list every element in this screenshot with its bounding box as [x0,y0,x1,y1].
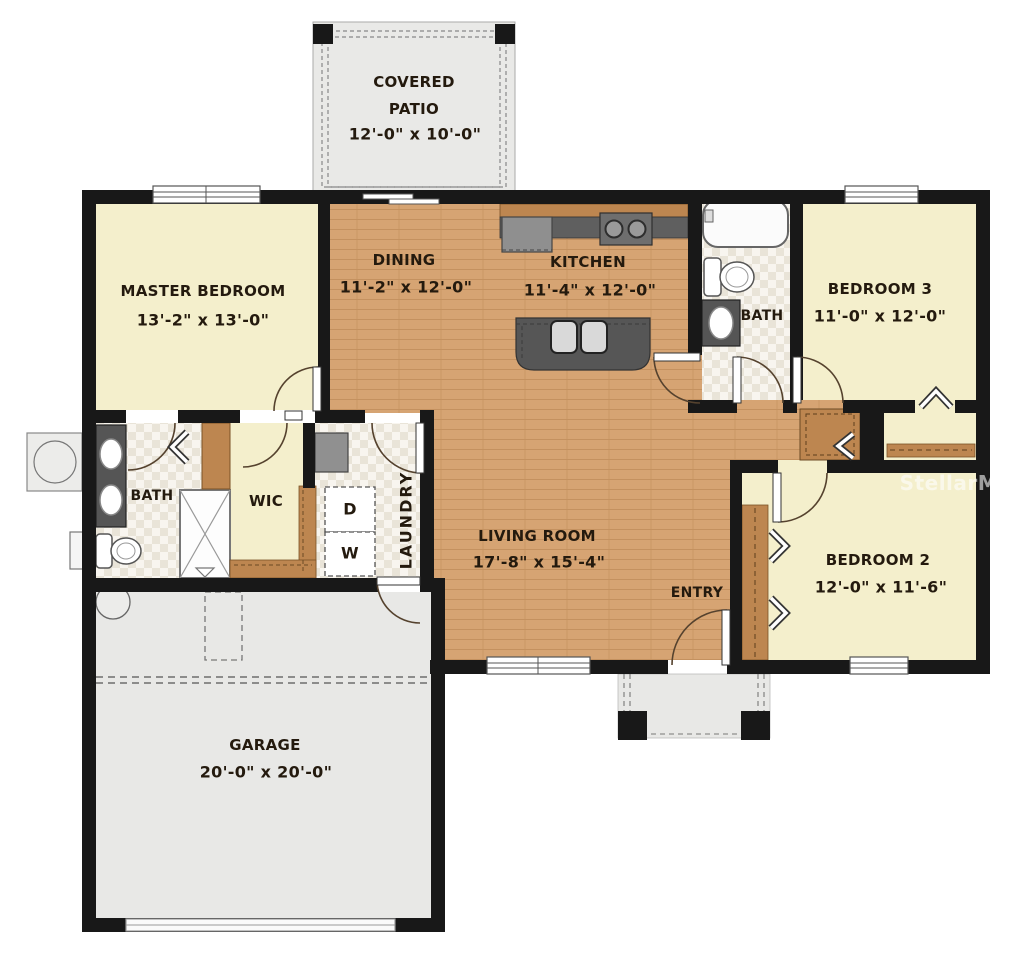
master-bedroom-label: MASTER BEDROOM [121,282,286,300]
bedroom3-window [845,186,918,203]
vanity-sink [702,300,740,346]
bedroom2-window [850,657,908,674]
kitchen-island [516,318,650,370]
toilet [704,258,754,296]
master-bedroom-dims: 13'-2" x 13'-0" [137,311,270,330]
patio-post [495,24,515,44]
built-in-cabinet [202,423,230,489]
master-bath-label: BATH [131,488,174,504]
shower [180,490,230,578]
bedroom3-dims: 11'-0" x 12'-0" [814,307,947,326]
living-window [487,657,590,674]
laundry-label: LAUNDRY [397,471,416,570]
garage-floor [96,592,431,918]
master-bedroom-floor [96,204,318,410]
patio-dims: 12'-0" x 10'-0" [349,125,482,144]
kitchen-dims: 11'-4" x 12'-0" [524,281,657,300]
bedroom3-closet-shelf [887,444,975,457]
entry-porch [618,674,770,740]
master-window [153,186,260,203]
entry-label: ENTRY [671,585,723,601]
bathtub [703,200,788,247]
garage-label: GARAGE [229,736,300,754]
bedroom3-label: BEDROOM 3 [828,280,932,298]
bedroom2-closet-shelf [742,505,768,660]
ac-pad [27,433,82,491]
living-room-dims: 17'-8" x 15'-4" [473,553,606,572]
floor-plan: COVERED PATIO 12'-0" x 10'-0" MASTER BED… [0,0,1016,961]
stellar-mls-watermark: StellarMLS [900,471,1016,495]
kitchen-label: KITCHEN [550,253,626,271]
hall-bath-label: BATH [741,308,784,324]
dining-dims: 11'-2" x 12'-0" [340,278,473,297]
patio-label-line2: PATIO [389,100,439,118]
cooktop [600,213,652,245]
bedroom2-dims: 12'-0" x 11'-6" [815,578,948,597]
patio-label-line1: COVERED [373,73,455,91]
bedroom2-label: BEDROOM 2 [826,551,930,569]
porch-post [741,711,770,740]
porch-post [618,711,647,740]
living-room-label: LIVING ROOM [478,527,596,545]
garage-dims: 20'-0" x 20'-0" [200,763,333,782]
garage-door [126,919,395,931]
dining-label: DINING [373,251,436,269]
wic-label: WIC [249,492,283,510]
refrigerator [502,217,552,252]
dryer-label: D [343,500,357,519]
bedroom2-door-threshold [778,460,827,473]
floorplan-svg [0,0,1016,961]
washer-label: W [341,544,359,563]
double-vanity [96,425,126,527]
patio-post [313,24,333,44]
utility-box [315,433,348,472]
